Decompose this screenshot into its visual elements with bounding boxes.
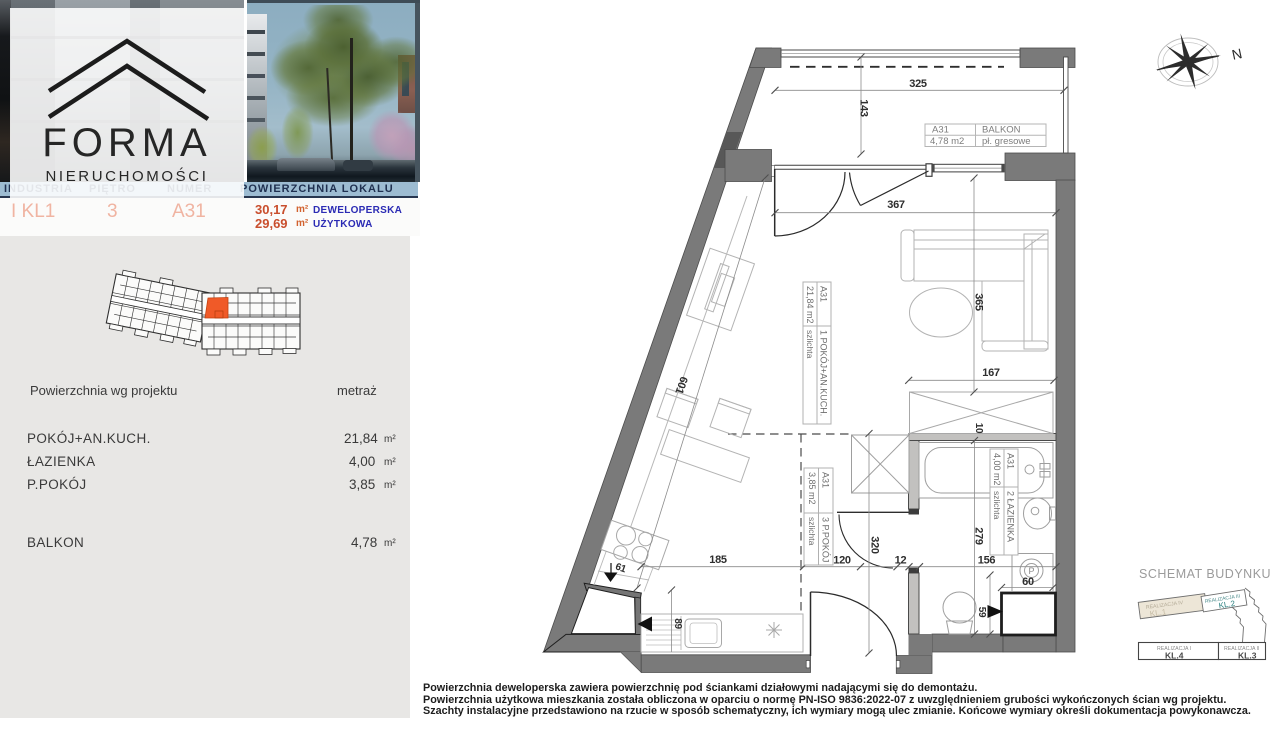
svg-text:325: 325 [909,78,927,90]
svg-text:3,85 m2: 3,85 m2 [807,472,817,505]
svg-text:4,78 m2: 4,78 m2 [930,136,964,147]
svg-text:12: 12 [895,555,907,567]
svg-text:167: 167 [982,367,1000,379]
svg-text:A31: A31 [932,125,949,136]
svg-text:10: 10 [973,423,984,434]
svg-text:60: 60 [1022,576,1034,588]
svg-text:367: 367 [887,199,905,211]
svg-text:2 ŁAZIENKA: 2 ŁAZIENKA [1006,491,1016,542]
svg-text:szlichta: szlichta [992,491,1002,520]
svg-text:A31: A31 [819,286,829,302]
svg-text:185: 185 [709,554,727,566]
svg-text:A31: A31 [1006,453,1016,469]
svg-text:156: 156 [978,555,996,567]
svg-text:P: P [1028,566,1034,576]
svg-text:SCHEMAT BUDYNKU: SCHEMAT BUDYNKU [1139,567,1271,581]
svg-text:4,00 m2: 4,00 m2 [992,453,1002,486]
svg-text:szlichta: szlichta [807,517,817,546]
svg-text:A31: A31 [821,472,831,488]
svg-text:365: 365 [973,293,985,311]
svg-text:pł. gresowe: pł. gresowe [982,136,1031,147]
svg-text:szlichta: szlichta [805,330,815,359]
svg-text:KL.3: KL.3 [1238,651,1257,661]
svg-text:143: 143 [858,99,870,117]
svg-text:BALKON: BALKON [982,125,1021,136]
svg-text:59: 59 [976,607,987,618]
svg-text:3 P.POKÓJ: 3 P.POKÓJ [821,517,831,562]
svg-text:320: 320 [869,536,881,554]
svg-text:N: N [1230,45,1243,63]
svg-text:120: 120 [833,555,851,567]
svg-text:1 POKÓJ+AN.KUCH.: 1 POKÓJ+AN.KUCH. [819,330,829,416]
svg-text:KL.1: KL.1 [1149,607,1167,618]
svg-text:89: 89 [672,618,683,629]
svg-text:279: 279 [973,527,985,545]
svg-text:21,84 m2: 21,84 m2 [805,286,815,324]
svg-text:KL.4: KL.4 [1165,651,1184,661]
